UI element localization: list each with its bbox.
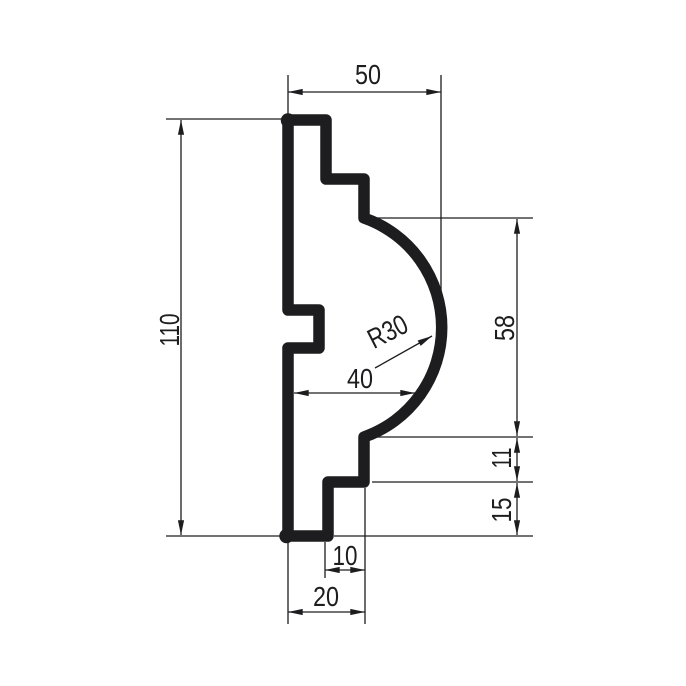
technical-drawing-canvas: 50 110 58 R30 40 11 15 10 20 bbox=[0, 0, 686, 686]
dim-label-height-overall: 110 bbox=[154, 314, 185, 347]
dimension-labels: 50 110 58 R30 40 11 15 10 20 bbox=[154, 59, 520, 612]
corner-dot-top-left bbox=[281, 113, 295, 127]
dim-label-height-curve: 58 bbox=[489, 315, 520, 341]
dimension-lines bbox=[181, 92, 517, 612]
dim-label-width-mid: 40 bbox=[347, 363, 373, 394]
dim-label-width-bottom: 20 bbox=[313, 581, 339, 612]
corner-dot-bottom-left bbox=[279, 529, 293, 543]
dim-label-width-top: 50 bbox=[355, 59, 381, 90]
profile-drawing: 50 110 58 R30 40 11 15 10 20 bbox=[0, 0, 686, 686]
dim-label-radius: R30 bbox=[362, 308, 413, 354]
dim-label-height-step-upper: 11 bbox=[486, 448, 517, 469]
dim-label-height-step-lower: 15 bbox=[486, 498, 517, 523]
dim-label-width-bottom-inner: 10 bbox=[333, 540, 358, 571]
